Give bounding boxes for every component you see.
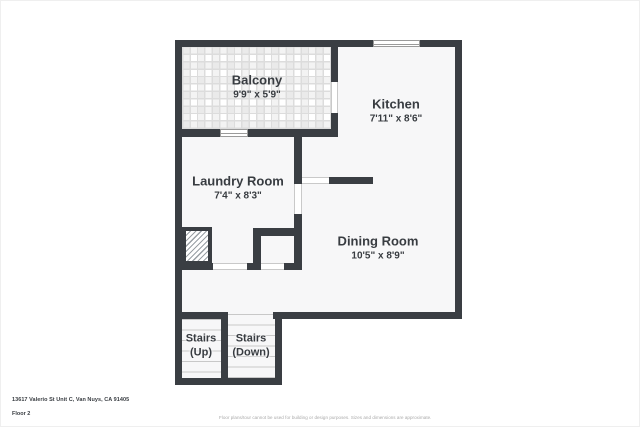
stairs-down-name: Stairs bbox=[232, 332, 269, 346]
wall-balcony-bottom bbox=[175, 129, 338, 137]
wall-closet-top bbox=[253, 228, 302, 236]
laundry-room-name: Laundry Room bbox=[192, 174, 284, 190]
balcony-label: Balcony 9'9" x 5'9" bbox=[232, 73, 283, 104]
wall-dining-bottom bbox=[273, 312, 462, 319]
laundry-door-opening bbox=[213, 263, 247, 270]
balcony-door-opening bbox=[331, 82, 338, 113]
stairs-up-label: Stairs (Up) bbox=[186, 332, 217, 361]
stairs-up-name: Stairs bbox=[186, 332, 217, 346]
kitchen-dimensions: 7'11" x 8'6" bbox=[370, 113, 423, 128]
floor-number-label: Floor 2 bbox=[12, 411, 30, 417]
dining-room-name: Dining Room bbox=[338, 234, 419, 250]
wall-stairs-right bbox=[275, 312, 282, 385]
floorplan-diagram: Balcony 9'9" x 5'9" Kitchen 7'11" x 8'6"… bbox=[0, 0, 640, 427]
wall-laundry-right-upper bbox=[294, 129, 302, 184]
wall-stairs-divider bbox=[221, 312, 228, 378]
floorplan-page: Balcony 9'9" x 5'9" Kitchen 7'11" x 8'6"… bbox=[0, 0, 640, 427]
utility-hatch-box bbox=[182, 227, 212, 265]
wall-kitchen-left-lower bbox=[331, 113, 338, 137]
wall-outer-right bbox=[455, 40, 462, 319]
wall-closet-bottom-right bbox=[284, 263, 302, 270]
stairs-down-direction: (Down) bbox=[232, 346, 269, 360]
closet-door-opening bbox=[261, 263, 284, 270]
disclaimer-text: Floor plans/tour cannot be used for buil… bbox=[219, 415, 431, 420]
wall-stairs-bottom bbox=[175, 378, 282, 385]
balcony-dimensions: 9'9" x 5'9" bbox=[232, 89, 283, 104]
pantry-door-opening bbox=[302, 177, 329, 184]
wall-laundry-right-lower bbox=[294, 214, 302, 270]
kitchen-window bbox=[373, 40, 420, 47]
dining-room-dimensions: 10'5" x 8'9" bbox=[338, 250, 419, 265]
stairs-down-label: Stairs (Down) bbox=[232, 332, 269, 361]
stairs-up-direction: (Up) bbox=[186, 346, 217, 360]
laundry-room-dimensions: 7'4" x 8'3" bbox=[192, 190, 284, 205]
property-address: 13617 Valerio St Unit C, Van Nuys, CA 91… bbox=[12, 397, 129, 403]
wall-kitchen-left-upper bbox=[331, 47, 338, 82]
wall-outer-left bbox=[175, 40, 182, 385]
laundry-side-door-opening bbox=[294, 184, 302, 214]
laundry-room-label: Laundry Room 7'4" x 8'3" bbox=[192, 174, 284, 205]
kitchen-name: Kitchen bbox=[370, 97, 423, 113]
laundry-window bbox=[220, 129, 248, 137]
dining-room-label: Dining Room 10'5" x 8'9" bbox=[338, 234, 419, 265]
kitchen-label: Kitchen 7'11" x 8'6" bbox=[370, 97, 423, 128]
balcony-name: Balcony bbox=[232, 73, 283, 89]
